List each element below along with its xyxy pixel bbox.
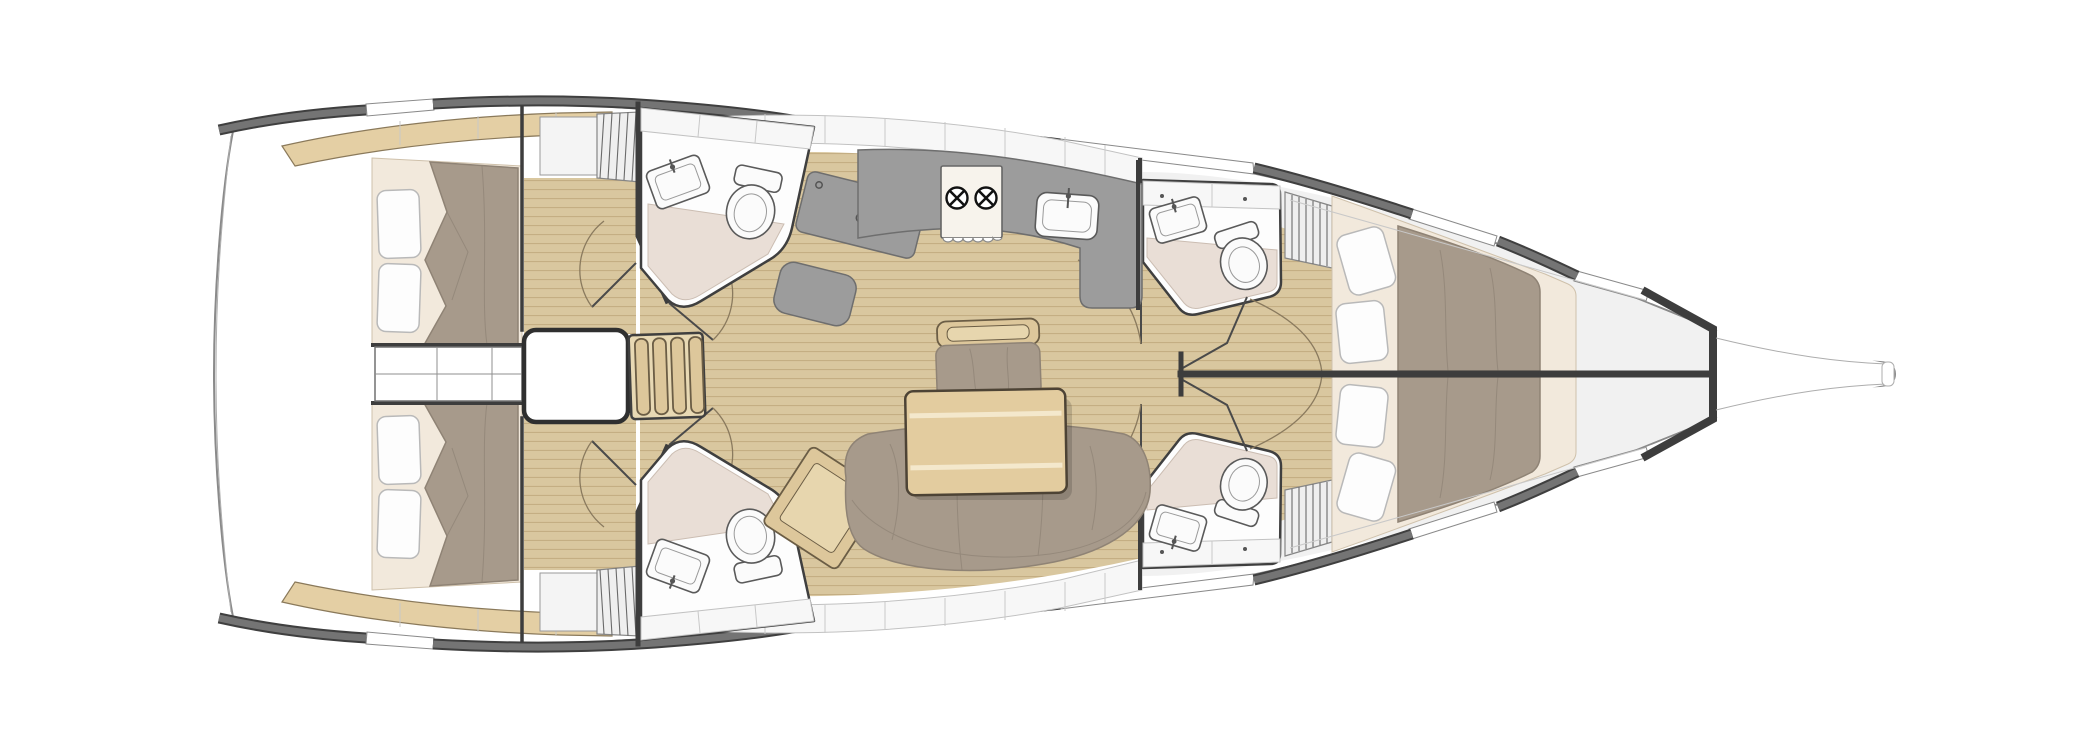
stove <box>941 166 1002 242</box>
engine-box <box>524 330 628 422</box>
burner <box>947 188 968 209</box>
salon-stool <box>935 318 1042 400</box>
bow-interior <box>1716 330 1893 418</box>
bowsprit-tip <box>1882 362 1894 386</box>
salon-table <box>905 389 1072 500</box>
yacht-floorplan <box>0 0 2090 748</box>
burner <box>976 188 997 209</box>
companionway-ladder <box>629 333 706 420</box>
floorplan-canvas <box>0 0 2090 748</box>
